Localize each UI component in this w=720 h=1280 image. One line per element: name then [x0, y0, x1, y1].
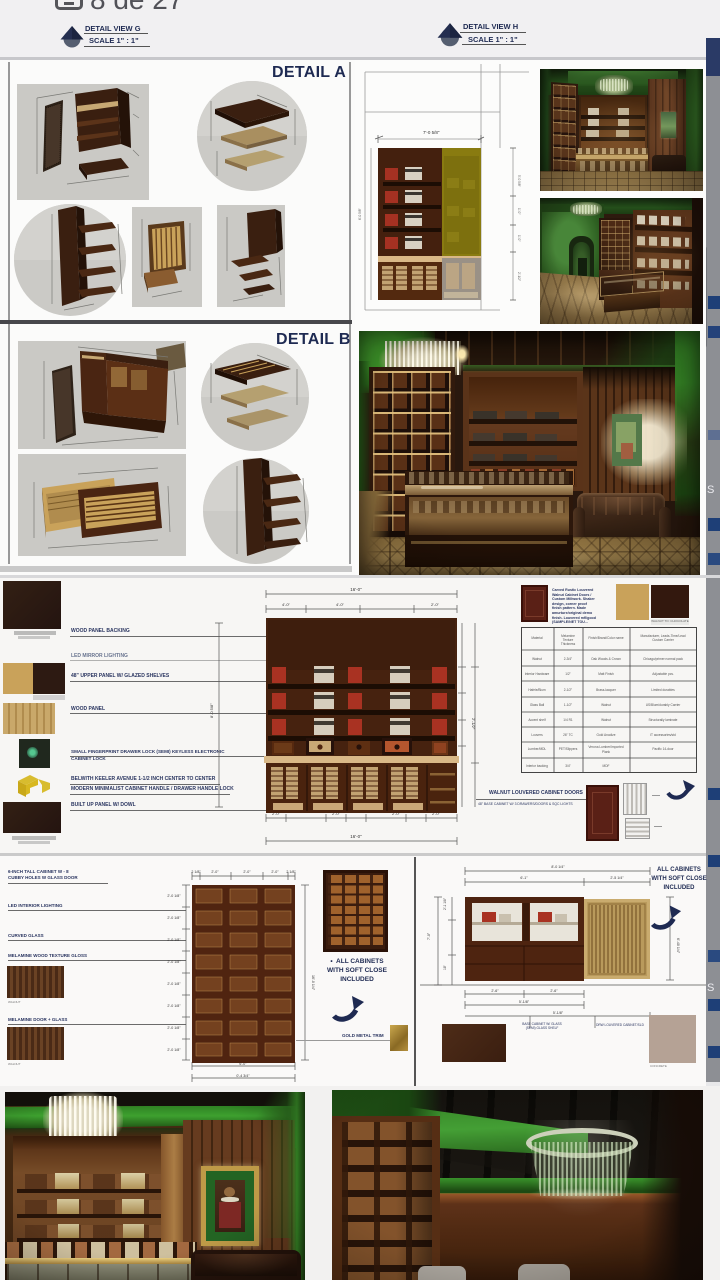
svg-text:5'-0 5/8": 5'-0 5/8" — [517, 175, 521, 187]
svg-text:PET/Slippers: PET/Slippers — [559, 747, 578, 751]
svg-text:7'-0 5/8": 7'-0 5/8" — [423, 130, 440, 135]
svg-text:3/4": 3/4" — [565, 764, 571, 768]
svg-text:1'-0": 1'-0" — [517, 235, 521, 241]
svg-text:2 1/8": 2 1/8" — [286, 870, 296, 874]
svg-text:2 1/8": 2 1/8" — [191, 870, 201, 874]
svg-text:Oak Woods & Crown: Oak Woods & Crown — [591, 657, 621, 661]
svg-text:18": 18" — [443, 964, 447, 970]
svg-text:6'-1": 6'-1" — [520, 876, 528, 880]
svg-text:2'-0 1/8": 2'-0 1/8" — [167, 938, 181, 942]
svg-text:Custom Carrier: Custom Carrier — [652, 638, 675, 642]
svg-text:Interior backing: Interior backing — [526, 764, 548, 768]
svg-text:Limited durables: Limited durables — [651, 688, 675, 692]
svg-text:Pacific 14-door: Pacific 14-door — [652, 747, 674, 751]
svg-text:6'-0 5/8": 6'-0 5/8" — [358, 208, 362, 220]
svg-text:Verona Lumber/Imported: Verona Lumber/Imported — [588, 745, 623, 749]
svg-text:Plank: Plank — [602, 750, 610, 754]
svg-text:2'-0 1/8": 2'-0 1/8" — [167, 1048, 181, 1052]
svg-text:MDF: MDF — [603, 764, 610, 768]
svg-text:Walnut: Walnut — [601, 718, 611, 722]
svg-text:Lumber/MDL: Lumber/MDL — [528, 747, 547, 751]
svg-text:16'-0": 16'-0" — [350, 834, 362, 839]
svg-text:Brass-lacquer: Brass-lacquer — [596, 688, 617, 692]
svg-text:2-3/4": 2-3/4" — [564, 657, 572, 661]
svg-text:Gold Anodize: Gold Anodize — [597, 733, 616, 737]
svg-text:2'-0 1/8": 2'-0 1/8" — [167, 1004, 181, 1008]
svg-text:2'-1 1/8": 2'-1 1/8" — [443, 897, 447, 910]
svg-text:2'-1/2": 2'-1/2" — [471, 718, 476, 730]
svg-text:Hafele/Blum: Hafele/Blum — [528, 688, 546, 692]
svg-text:Thickness: Thickness — [561, 642, 576, 646]
svg-text:5'-1/8": 5'-1/8" — [519, 1000, 530, 1004]
svg-text:Finish/Brand/Color name: Finish/Brand/Color name — [588, 636, 623, 640]
svg-text:26" TC: 26" TC — [563, 733, 573, 737]
svg-text:2'-0 1/8": 2'-0 1/8" — [167, 982, 181, 986]
svg-text:1/4 R1: 1/4 R1 — [563, 718, 573, 722]
svg-text:(SEMI) GLASS SHELF: (SEMI) GLASS SHELF — [526, 1026, 559, 1030]
svg-text:Louvers: Louvers — [531, 733, 543, 737]
svg-text:8'-0 5/8": 8'-0 5/8" — [209, 703, 214, 718]
svg-text:Walnut: Walnut — [601, 703, 611, 707]
svg-text:1'-0": 1'-0" — [517, 208, 521, 214]
svg-text:US/Blum/durably Carrier: US/Blum/durably Carrier — [646, 703, 681, 707]
svg-text:2'-0": 2'-0" — [431, 602, 440, 607]
svg-text:Structurally laminate: Structurally laminate — [649, 718, 678, 722]
svg-text:2'-6": 2'-6" — [550, 989, 558, 993]
svg-text:4'-0": 4'-0" — [282, 602, 291, 607]
svg-text:16'-0": 16'-0" — [350, 587, 362, 592]
svg-text:IT accessories/std: IT accessories/std — [650, 733, 676, 737]
svg-text:7'-0": 7'-0" — [427, 932, 431, 940]
svg-text:Material: Material — [531, 636, 543, 640]
svg-text:2'-0 1/8": 2'-0 1/8" — [167, 1026, 181, 1030]
svg-text:DRW LOUVERED CABINET/SLD: DRW LOUVERED CABINET/SLD — [596, 1023, 644, 1027]
svg-text:2'-1/2": 2'-1/2" — [517, 272, 521, 281]
svg-text:Adjustable pcs.: Adjustable pcs. — [652, 672, 674, 676]
svg-text:Accent shelf: Accent shelf — [528, 718, 545, 722]
svg-text:2'-0 1/8": 2'-0 1/8" — [167, 960, 181, 964]
svg-text:6'-40 1/4": 6'-40 1/4" — [676, 938, 680, 954]
svg-text:16'-0 1/4": 16'-0 1/4" — [311, 975, 315, 991]
svg-text:2'-6": 2'-6" — [491, 989, 499, 993]
svg-text:Glass Ball: Glass Ball — [530, 703, 545, 707]
svg-text:Interior Hardware: Interior Hardware — [525, 672, 550, 676]
svg-text:2'-5 1/4": 2'-5 1/4" — [610, 876, 624, 880]
svg-text:1/2": 1/2" — [565, 672, 571, 676]
svg-text:4'-0": 4'-0" — [336, 602, 345, 607]
svg-text:1-1/2": 1-1/2" — [564, 703, 572, 707]
svg-text:2'-0": 2'-0" — [211, 870, 219, 874]
svg-text:2'-0": 2'-0" — [271, 870, 279, 874]
svg-text:2'-0": 2'-0" — [243, 870, 251, 874]
svg-text:2-1/2": 2-1/2" — [564, 688, 572, 692]
svg-text:2'-0 1/8": 2'-0 1/8" — [167, 894, 181, 898]
svg-text:Matt Finish: Matt Finish — [598, 672, 614, 676]
svg-text:0'-4 3/4": 0'-4 3/4" — [236, 1074, 250, 1078]
svg-text:5'-1/8": 5'-1/8" — [553, 1011, 564, 1015]
svg-text:Chicago/primer normal pack: Chicago/primer normal pack — [643, 657, 683, 661]
svg-text:8'-0 1/4": 8'-0 1/4" — [551, 865, 565, 869]
svg-text:2'-0 1/8": 2'-0 1/8" — [167, 916, 181, 920]
svg-text:Walnut: Walnut — [532, 657, 542, 661]
